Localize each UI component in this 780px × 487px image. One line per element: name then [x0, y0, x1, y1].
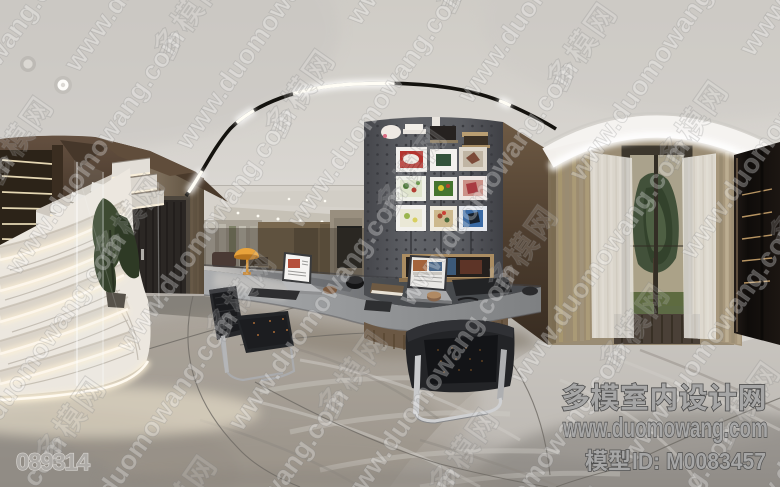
- svg-text:www.duomowang.com: www.duomowang.com: [562, 412, 768, 443]
- svg-text:089314: 089314: [16, 449, 91, 476]
- svg-text:ID: M0083457: ID: M0083457: [632, 448, 766, 474]
